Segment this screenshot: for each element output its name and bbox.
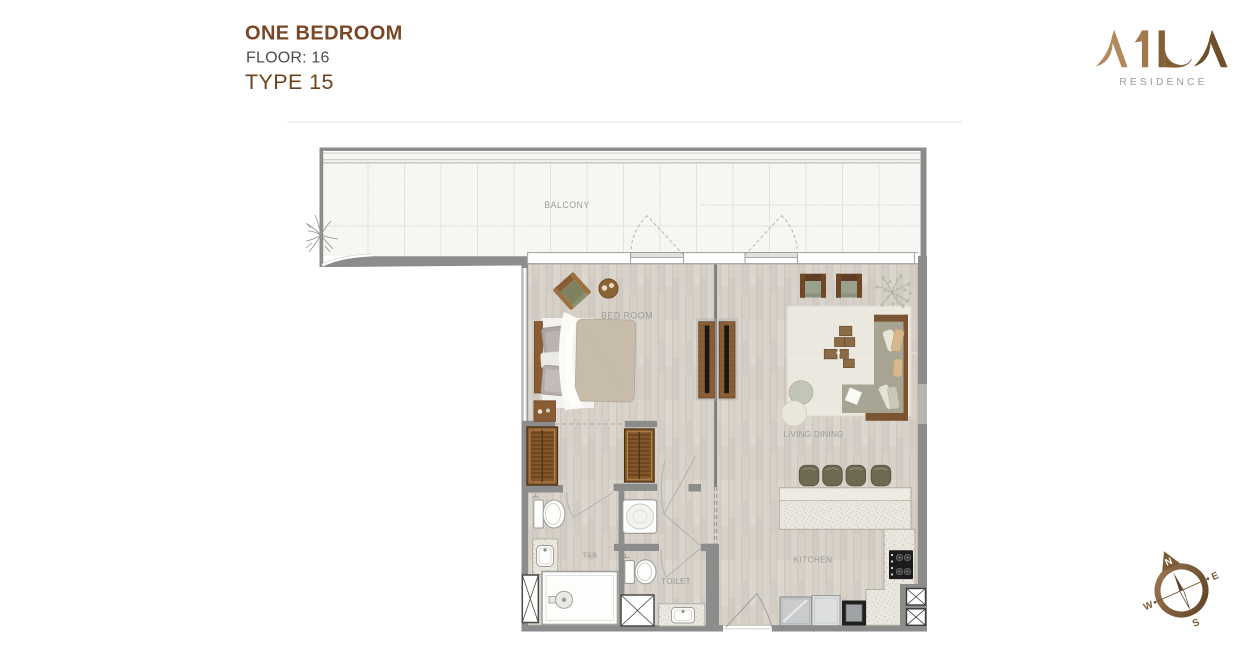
- svg-text:W: W: [1142, 599, 1156, 613]
- svg-text:T&B: T&B: [583, 551, 598, 560]
- svg-text:TYPE 15: TYPE 15: [245, 70, 334, 94]
- svg-text:TOILET: TOILET: [661, 577, 691, 586]
- svg-text:LIVING DINING: LIVING DINING: [783, 430, 843, 439]
- svg-text:E: E: [1210, 570, 1221, 583]
- svg-text:S: S: [1191, 617, 1202, 630]
- svg-text:KITCHEN: KITCHEN: [794, 556, 833, 565]
- svg-text:RESIDENCE: RESIDENCE: [1119, 77, 1207, 88]
- svg-text:FLOOR: 16: FLOOR: 16: [246, 50, 330, 67]
- svg-text:BALCONY: BALCONY: [544, 200, 590, 210]
- svg-text:BED ROOM: BED ROOM: [601, 311, 653, 321]
- svg-text:ONE BEDROOM: ONE BEDROOM: [245, 23, 403, 45]
